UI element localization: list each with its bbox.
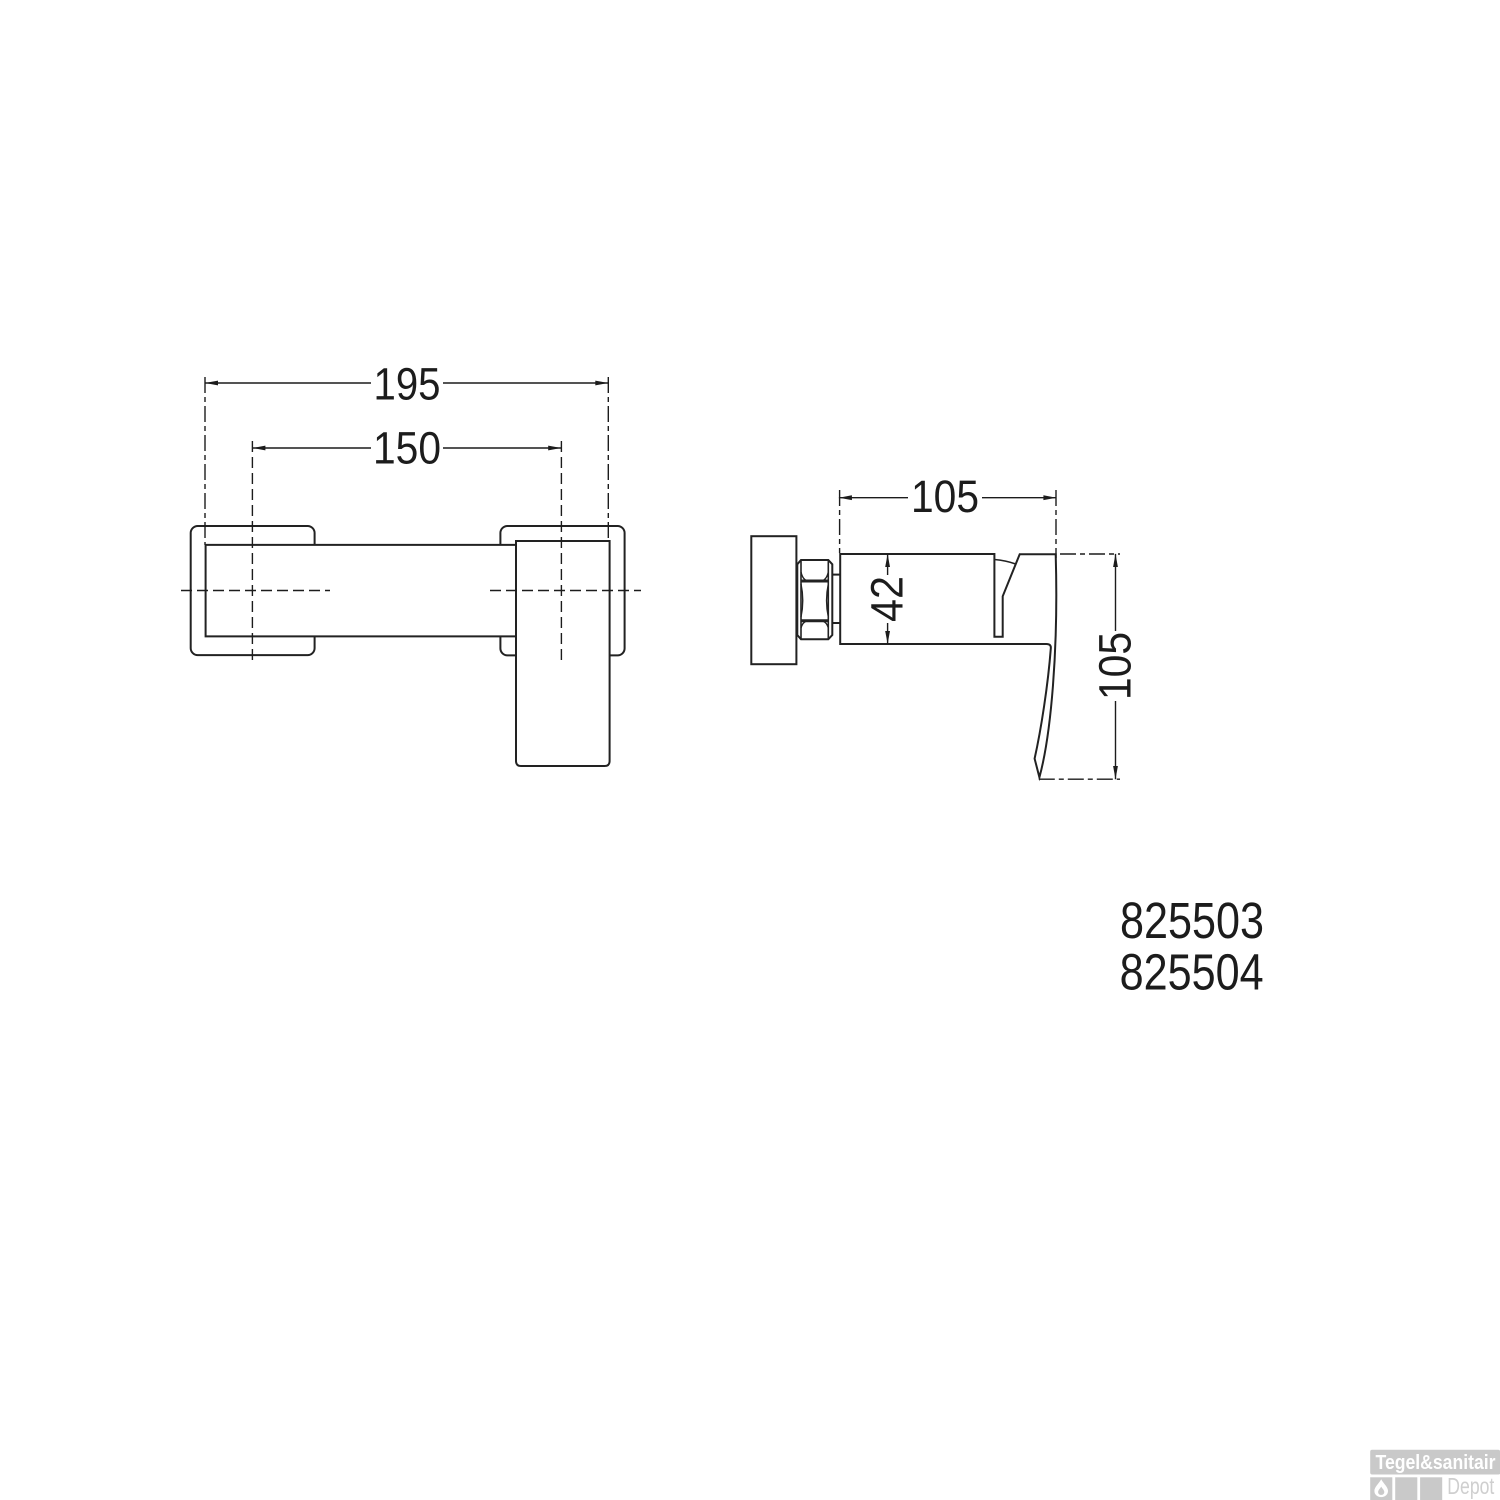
svg-text:105: 105	[1090, 632, 1141, 700]
svg-text:825503: 825503	[1120, 892, 1264, 949]
svg-text:825504: 825504	[1120, 943, 1264, 1000]
svg-text:150: 150	[373, 423, 441, 474]
svg-text:42: 42	[862, 576, 913, 622]
svg-text:105: 105	[911, 471, 979, 522]
svg-text:Tegel&sanitair: Tegel&sanitair	[1376, 1452, 1496, 1474]
svg-text:Depot: Depot	[1447, 1473, 1494, 1499]
svg-text:195: 195	[374, 359, 441, 410]
